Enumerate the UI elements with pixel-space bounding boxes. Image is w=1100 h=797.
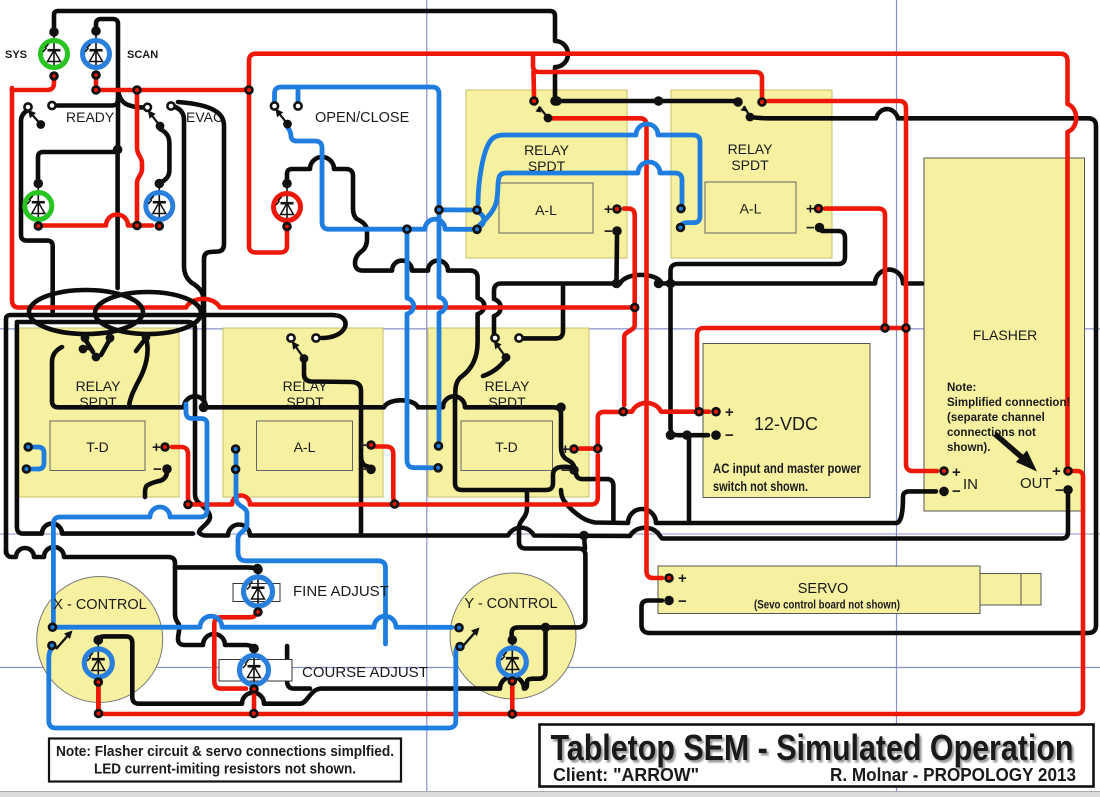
svg-text:+: + xyxy=(806,201,815,218)
svg-text:OPEN/CLOSE: OPEN/CLOSE xyxy=(315,110,410,126)
svg-text:A-L: A-L xyxy=(294,439,316,455)
svg-text:RELAY: RELAY xyxy=(524,142,570,158)
svg-text:T-D: T-D xyxy=(495,439,518,455)
svg-text:Note:: Note: xyxy=(947,382,976,394)
svg-text:+: + xyxy=(725,404,734,421)
svg-text:Simplified connection!: Simplified connection! xyxy=(947,397,1070,409)
svg-text:COURSE ADJUST: COURSE ADJUST xyxy=(302,664,428,681)
svg-text:SERVO: SERVO xyxy=(798,581,849,597)
svg-text:Note: Flasher circuit & servo: Note: Flasher circuit & servo connection… xyxy=(56,744,394,760)
svg-text:RELAY: RELAY xyxy=(485,378,531,394)
svg-text:T-D: T-D xyxy=(86,439,109,455)
svg-text:−: − xyxy=(725,427,734,444)
svg-text:SPDT: SPDT xyxy=(488,394,526,410)
svg-text:+: + xyxy=(952,464,961,481)
svg-text:−: − xyxy=(153,461,162,478)
svg-text:OUT: OUT xyxy=(1020,475,1052,492)
svg-text:−: − xyxy=(604,223,613,240)
svg-text:+: + xyxy=(678,570,687,587)
svg-text:−: − xyxy=(358,461,367,478)
svg-text:FLASHER: FLASHER xyxy=(973,327,1038,343)
svg-text:+: + xyxy=(1052,463,1061,480)
svg-text:READY: READY xyxy=(66,109,115,125)
svg-text:SPDT: SPDT xyxy=(528,158,566,174)
svg-text:Tabletop SEM - Simulated Opera: Tabletop SEM - Simulated Operation xyxy=(551,727,1074,768)
svg-text:SPDT: SPDT xyxy=(731,157,769,173)
svg-text:−: − xyxy=(1055,482,1064,499)
svg-text:(Sevo control board not shown): (Sevo control board not shown) xyxy=(754,598,900,612)
svg-text:SPDT: SPDT xyxy=(286,394,324,410)
svg-text:SCAN: SCAN xyxy=(127,49,158,61)
svg-text:+: + xyxy=(358,437,367,454)
svg-text:A-L: A-L xyxy=(535,202,557,218)
svg-text:−: − xyxy=(952,483,961,500)
svg-text:−: − xyxy=(806,220,815,237)
svg-text:RELAY: RELAY xyxy=(728,141,774,157)
svg-text:−: − xyxy=(561,462,570,479)
svg-text:connections not: connections not xyxy=(947,427,1036,439)
svg-text:A-L: A-L xyxy=(740,201,762,217)
svg-text:12-VDC: 12-VDC xyxy=(754,414,818,434)
svg-text:RELAY: RELAY xyxy=(76,378,122,394)
svg-text:(separate channel: (separate channel xyxy=(947,412,1045,424)
svg-text:+: + xyxy=(152,439,161,456)
svg-text:+: + xyxy=(604,201,613,218)
svg-text:SYS: SYS xyxy=(5,49,27,61)
svg-text:LED current-imiting resistors: LED current-imiting resistors not shown. xyxy=(94,762,356,778)
svg-text:SPDT: SPDT xyxy=(79,394,117,410)
svg-text:IN: IN xyxy=(963,476,978,493)
svg-text:−: − xyxy=(678,593,687,610)
svg-text:EVAC: EVAC xyxy=(186,109,223,125)
svg-text:+: + xyxy=(561,441,570,458)
svg-text:FINE ADJUST: FINE ADJUST xyxy=(293,583,389,600)
svg-text:Y - CONTROL: Y - CONTROL xyxy=(464,596,557,612)
svg-text:X - CONTROL: X - CONTROL xyxy=(53,597,146,613)
svg-text:AC input and master power: AC input and master power xyxy=(713,461,862,476)
svg-text:switch not shown.: switch not shown. xyxy=(713,479,808,494)
svg-text:shown).: shown). xyxy=(947,442,990,454)
svg-text:Client: "ARROW": Client: "ARROW" xyxy=(553,765,699,785)
svg-text:R. Molnar - PROPOLOGY 2013: R. Molnar - PROPOLOGY 2013 xyxy=(830,765,1076,785)
svg-text:RELAY: RELAY xyxy=(283,378,329,394)
